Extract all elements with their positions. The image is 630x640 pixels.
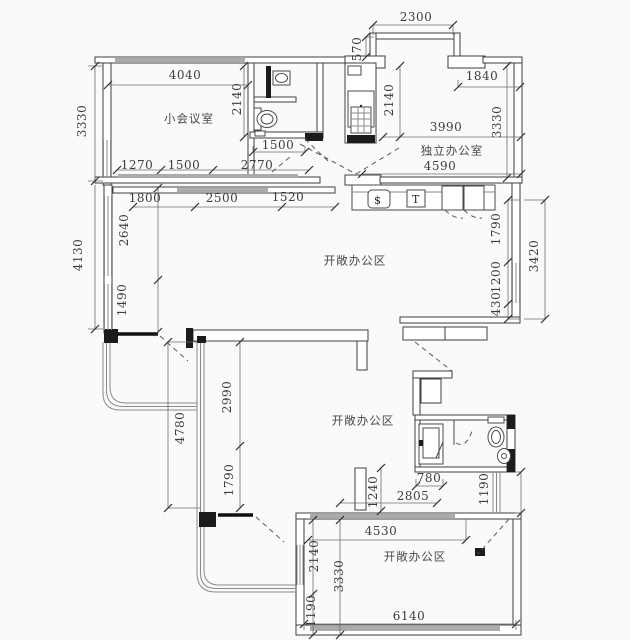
dimension-label: 4040 [169, 69, 202, 81]
dimension-label: 4130 [72, 239, 84, 272]
svg-text:T: T [412, 193, 420, 206]
dimension-label: 2300 [400, 11, 433, 23]
dimension-label: 1190 [478, 473, 490, 506]
room-label: 独立办公室 [421, 145, 484, 157]
dimension-label: 4780 [174, 412, 186, 445]
room-label: 小会议室 [164, 113, 214, 125]
appliance [442, 186, 463, 210]
dimension-label: 2140 [231, 83, 243, 116]
dimension-label: 2140 [308, 540, 320, 573]
appliance [464, 186, 484, 210]
dimension-label: 1490 [116, 284, 128, 317]
dimension-label: 1520 [272, 191, 305, 203]
dimension-label: 1240 [367, 476, 379, 509]
dimension-label: 6140 [393, 610, 426, 622]
curtain-wall [103, 341, 296, 592]
dimension-label: 1840 [466, 70, 499, 82]
dimension-label: 2770 [241, 159, 274, 171]
dimension-label: 2140 [383, 84, 395, 117]
dimension-label: 1500 [168, 159, 201, 171]
floor-drain-icon: $ [368, 190, 390, 208]
dimension-label: 3990 [430, 121, 463, 133]
dimension-label: 3330 [333, 560, 345, 593]
dimension-label: 3330 [491, 106, 503, 139]
sink-icon [273, 71, 290, 85]
dimension-label: 1800 [129, 192, 162, 204]
dimension-label: 1190 [305, 595, 317, 628]
dimension-label: 430 [490, 292, 502, 316]
room-label: 开敞办公区 [332, 415, 395, 427]
floor-plan-canvas: $ T [0, 0, 630, 640]
dimension-label: 1200 [490, 261, 502, 294]
room-label: 开敞办公区 [384, 551, 447, 563]
shower-icon [419, 424, 443, 464]
wall-blocks [104, 66, 515, 556]
dimension-label: 1500 [262, 139, 295, 151]
dimension-label: 780 [417, 472, 441, 484]
dimension-label: 4590 [424, 160, 457, 172]
basin-icon [498, 449, 511, 464]
tap-icon: T [407, 190, 425, 207]
dimension-label: 3420 [528, 240, 540, 273]
dimension-label: 3330 [76, 105, 88, 138]
dimension-label: 2500 [206, 192, 239, 204]
dimension-label: 1790 [490, 213, 502, 246]
room-label: 开敞办公区 [324, 255, 387, 267]
dimension-label: 2990 [221, 381, 233, 414]
svg-text:$: $ [374, 194, 381, 207]
dimension-label: 2805 [397, 490, 430, 502]
pantry-counter: $ T [352, 185, 495, 210]
dimension-label: 2640 [118, 214, 130, 247]
dimension-label: 570 [351, 37, 363, 61]
dimension-label: 1270 [121, 159, 154, 171]
dimension-label: 1790 [223, 464, 235, 497]
dimension-label: 4530 [365, 525, 398, 537]
toilet-icon [488, 417, 504, 447]
